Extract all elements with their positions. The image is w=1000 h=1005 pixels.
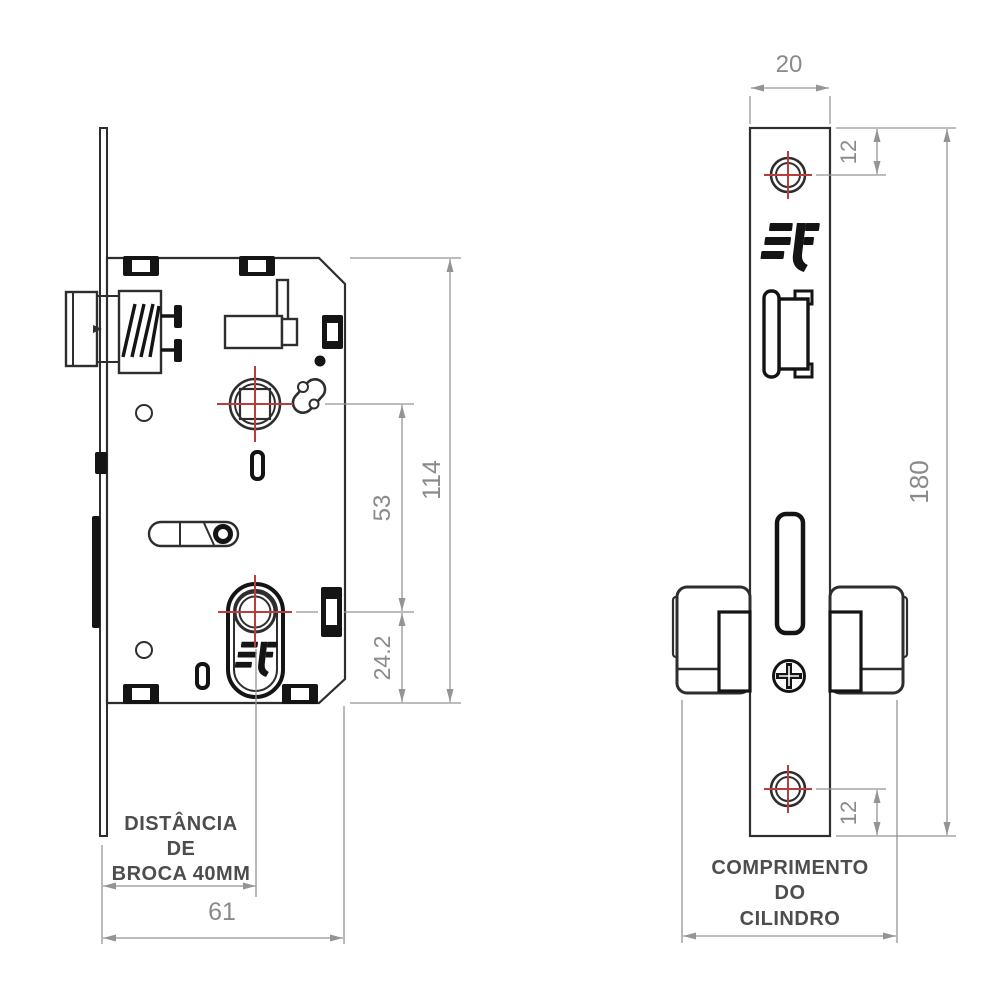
drill-note-line1: DISTÂNCIA (124, 811, 237, 835)
cylinder-front-right (830, 587, 907, 693)
dim-value-24-2: 24.2 (369, 636, 395, 681)
phillips-screw-icon (774, 661, 805, 692)
dim-line-12-180 (816, 128, 956, 836)
cylinder-note-line1: COMPRIMENTO (711, 857, 868, 879)
left-view-lock-body (66, 128, 345, 836)
drill-note-line2: DE (167, 838, 196, 860)
right-view-faceplate (673, 128, 907, 836)
dim-value-12-top: 12 (836, 140, 861, 164)
dim-value-61: 61 (208, 898, 236, 926)
dim-value-114: 114 (418, 460, 446, 500)
lever-slot (149, 522, 238, 546)
lock-dimension-diagram: 114 53 24.2 61 20 12 180 12 DISTÂNCIA DE… (0, 0, 1000, 1000)
dim-value-180: 180 (904, 460, 934, 503)
edge-block (95, 452, 107, 474)
dim-value-12-bottom: 12 (836, 801, 861, 825)
drill-note-line3: BROCA 40MM (112, 863, 251, 885)
latch-opening (764, 291, 812, 377)
cylinder-note-line3: CILINDRO (740, 908, 841, 930)
cylinder-front-left (673, 587, 750, 693)
deadbolt-slot (777, 514, 803, 633)
technical-drawing-canvas: 114 53 24.2 61 20 12 180 12 DISTÂNCIA DE… (0, 0, 1000, 1000)
dim-value-20: 20 (776, 51, 803, 78)
cylinder-note-line2: DO (775, 882, 806, 904)
dim-line-20 (750, 88, 830, 124)
faceplate-front (750, 128, 830, 836)
lock-views (66, 128, 907, 836)
edge-strip (92, 516, 100, 628)
dim-value-53: 53 (369, 495, 396, 522)
